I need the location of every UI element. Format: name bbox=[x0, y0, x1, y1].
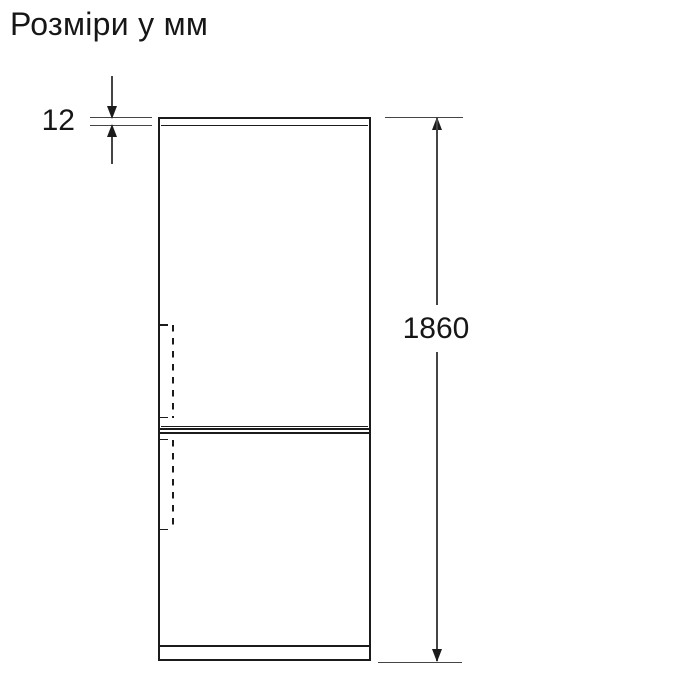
appliance-dimension-diagram: Розміри у мм 12 1860 bbox=[0, 0, 700, 700]
fridge-right-edge bbox=[369, 117, 371, 661]
compartment-divider-line-bottom bbox=[158, 432, 371, 434]
hinge-dashed-line-upper bbox=[172, 325, 174, 418]
dim-12-label: 12 bbox=[33, 106, 75, 136]
dim-1860-extension-line-top bbox=[385, 117, 463, 118]
hinge-tick-lower-top bbox=[158, 439, 168, 440]
dim-1860-line-lower bbox=[436, 352, 437, 661]
dim-1860-line-upper bbox=[436, 118, 437, 305]
dim-12-arrow-down-icon bbox=[107, 106, 117, 119]
compartment-divider-line-top bbox=[158, 428, 371, 430]
dim-12-extension-line-bottom bbox=[90, 125, 152, 126]
top-panel-inner-line bbox=[161, 125, 368, 126]
hinge-dashed-line-lower bbox=[172, 440, 174, 530]
page-title: Розміри у мм bbox=[10, 6, 208, 43]
fridge-bottom-edge bbox=[158, 659, 371, 661]
upper-door-bottom-line bbox=[161, 426, 368, 427]
dim-12-extension-line-top bbox=[90, 117, 152, 118]
fridge-left-edge bbox=[158, 117, 160, 661]
dim-1860-extension-line-bottom bbox=[378, 662, 462, 663]
dim-12-leader-line-lower bbox=[111, 137, 112, 164]
hinge-tick-upper-top bbox=[158, 324, 168, 325]
dim-12-arrow-up-icon bbox=[107, 124, 117, 137]
dim-1860-label: 1860 bbox=[394, 314, 478, 344]
hinge-tick-upper-bottom bbox=[158, 417, 168, 418]
hinge-tick-lower-bottom bbox=[158, 529, 168, 530]
plinth-line bbox=[160, 645, 369, 647]
fridge-top-edge bbox=[158, 117, 371, 119]
dim-12-leader-line-upper bbox=[111, 76, 112, 106]
dim-1860-arrow-down-icon bbox=[432, 649, 442, 662]
